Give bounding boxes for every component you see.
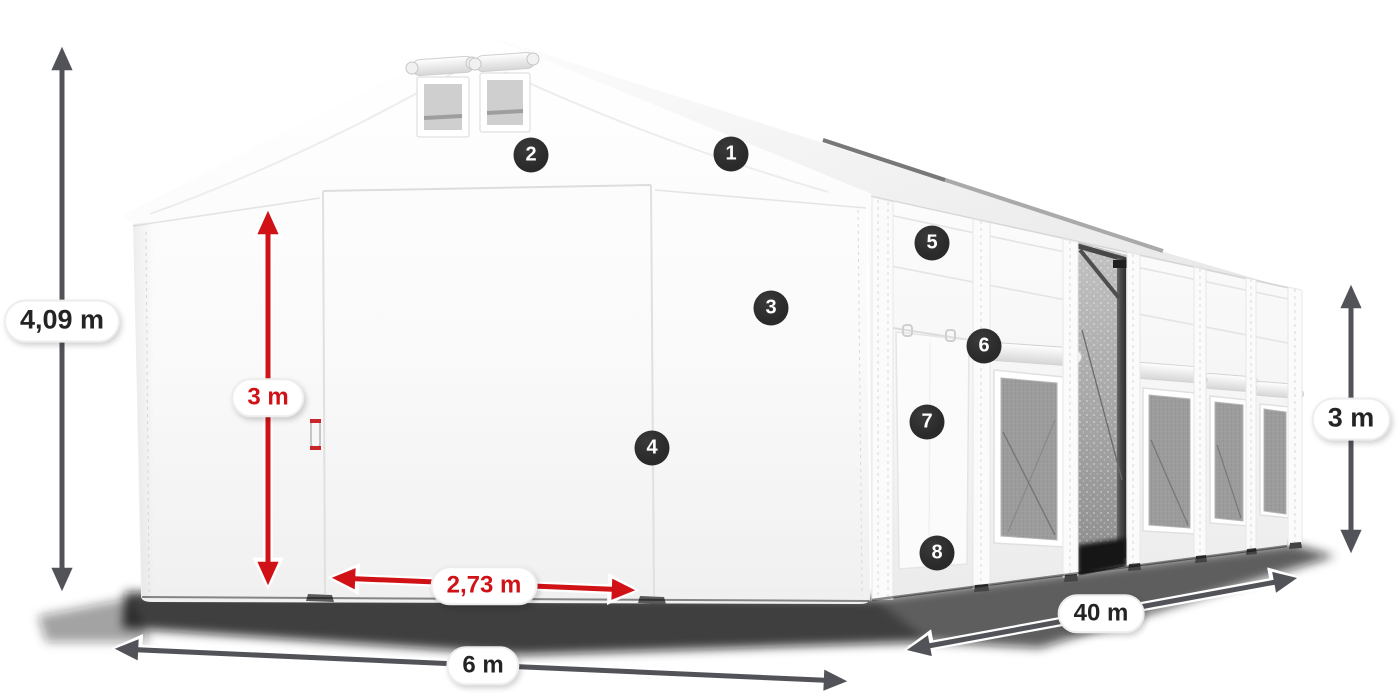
side-door-flap	[896, 325, 969, 569]
marker-1: 1	[714, 137, 749, 172]
marker-2: 2	[514, 138, 549, 173]
dim-label-tent-width: 6 m	[446, 646, 519, 685]
marker-4: 4	[635, 431, 670, 466]
dim-label-total-height: 4,09 m	[4, 300, 120, 343]
marker-3: 3	[754, 291, 789, 326]
dim-label-entrance-height: 3 m	[231, 378, 304, 417]
marker-5: 5	[915, 226, 950, 261]
marker-6: 6	[967, 329, 1002, 364]
side-entrance-opening	[1075, 240, 1130, 580]
roof-vent-window	[406, 56, 478, 137]
tent-illustration	[0, 0, 1400, 700]
marker-7: 7	[910, 405, 945, 440]
dim-label-side-height: 3 m	[1312, 398, 1391, 441]
marker-8: 8	[920, 536, 955, 571]
door-handle	[310, 419, 321, 450]
dim-label-tent-length: 40 m	[1058, 594, 1145, 633]
dim-label-entrance-width: 2,73 m	[431, 566, 538, 605]
roof-vent-window	[469, 52, 539, 132]
tent-dimension-diagram: 1 2 3 4 5 6 7 8 4,09 m 3 m 2,73 m 6 m 40…	[0, 0, 1400, 700]
